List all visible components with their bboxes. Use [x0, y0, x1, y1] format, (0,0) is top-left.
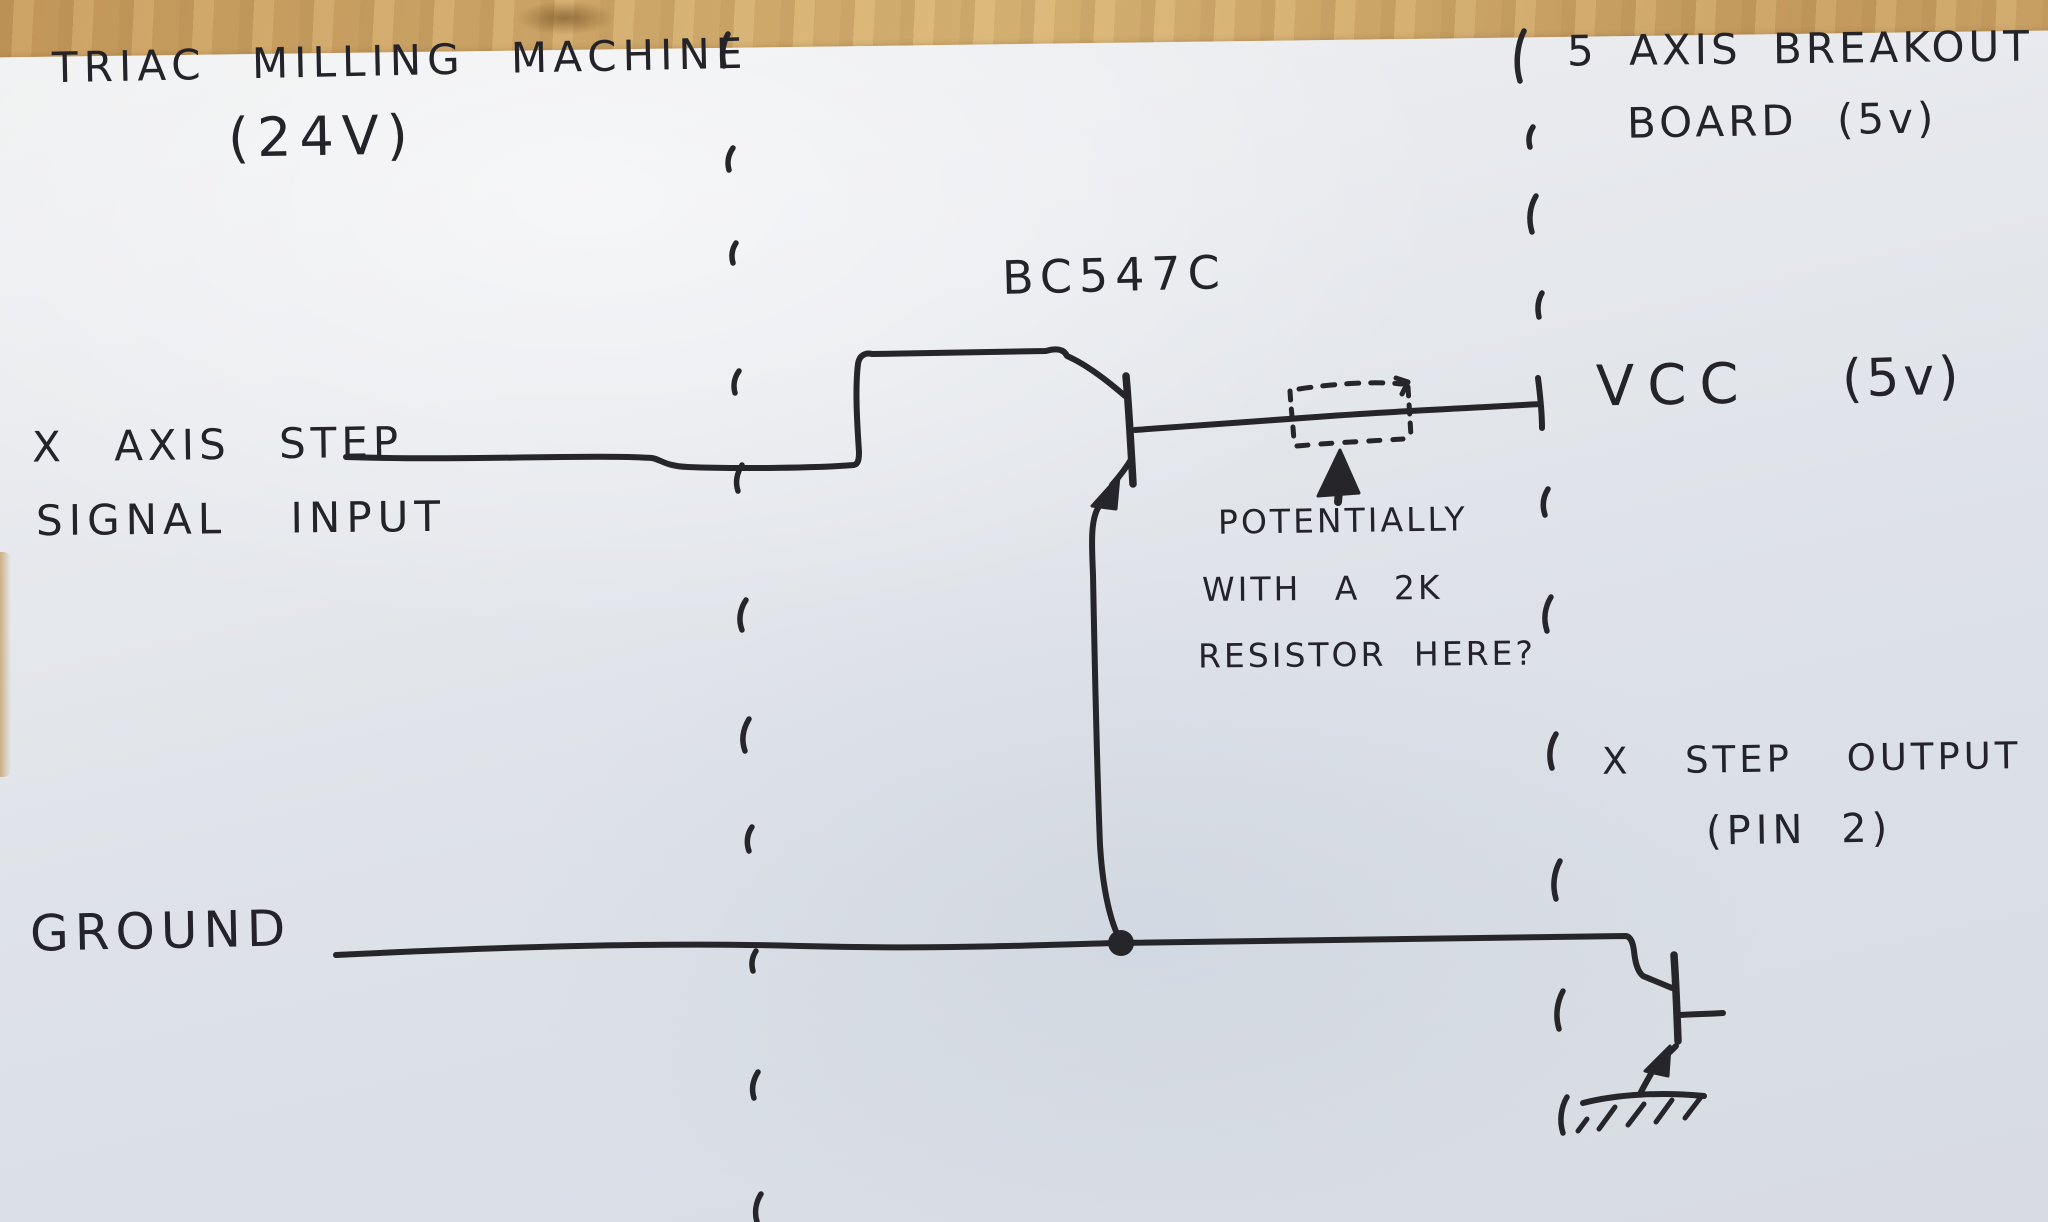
step-input-wire — [346, 349, 1125, 468]
breakout-title: 5 AXIS BREAKOUT — [1567, 26, 2033, 73]
vcc-terminal-tick — [1538, 378, 1542, 428]
circuit-drawing — [0, 0, 2048, 1222]
junction-dot — [1108, 930, 1134, 956]
right-dashed-divider — [1517, 31, 1567, 1133]
pointer-arrow-icon — [1318, 450, 1359, 502]
pin-label: (PIN 2) — [1706, 808, 1893, 851]
triac-voltage: (24V) — [228, 108, 417, 165]
collector-wire — [1135, 404, 1540, 430]
output-emitter-arrow-icon — [1645, 1046, 1670, 1076]
resistor-note-line2: WITH A 2K — [1202, 571, 1443, 606]
ground-wire — [336, 936, 1672, 988]
transistor-label: BC547C — [1001, 249, 1227, 301]
breakout-subtitle: BOARD (5v) — [1627, 97, 1938, 144]
vcc-voltage-label: (5v) — [1841, 350, 1963, 405]
ground-symbol-icon — [1578, 1094, 1704, 1131]
signal-input-label: SIGNAL INPUT — [36, 496, 446, 542]
ground-label: GROUND — [30, 903, 292, 958]
emitter-to-ground-wire — [1092, 508, 1120, 940]
step-output-label: X STEP OUTPUT — [1602, 737, 2022, 780]
x-axis-step-label: X AXIS STEP — [32, 421, 404, 468]
emitter-arrow-icon — [1092, 476, 1119, 509]
vcc-label: VCC — [1596, 357, 1752, 416]
resistor-note-line3: RESISTOR HERE? — [1198, 637, 1536, 673]
left-dashed-divider — [723, 34, 761, 1222]
photo-of-hand-drawn-schematic: TRIAC MILLING MACHINE (24V) 5 AXIS BREAK… — [0, 0, 2048, 1222]
output-transistor-symbol — [1641, 955, 1723, 1092]
resistor-note-line1: POTENTIALLY — [1218, 502, 1468, 538]
